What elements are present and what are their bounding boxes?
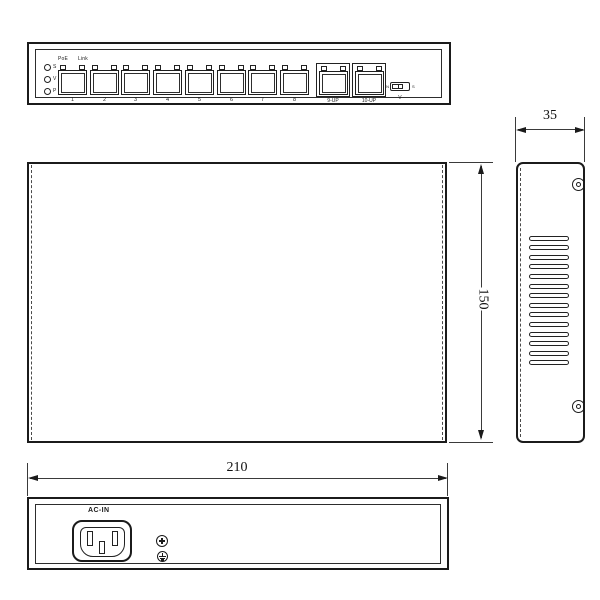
rj45-port[interactable]: 6 [217, 65, 246, 105]
port-opening [90, 70, 119, 95]
switch-right-mark: S [412, 84, 415, 89]
vent-slot [529, 341, 569, 346]
vent-slot [529, 255, 569, 260]
screw-hole-bottom [572, 400, 585, 413]
vent-slot [529, 360, 569, 365]
top-view [27, 162, 447, 443]
port-number: 5 [185, 97, 214, 103]
port-number: 4 [153, 97, 182, 103]
vent-slot [529, 293, 569, 298]
status-led-v [44, 76, 51, 83]
vent-slot [529, 274, 569, 279]
port-number: 1 [58, 97, 87, 103]
port-opening [217, 70, 246, 95]
vlan-mode-switch[interactable] [390, 82, 410, 91]
dim-150-ext-top [449, 162, 493, 163]
rj45-port[interactable]: 1 [58, 65, 87, 105]
rj45-port[interactable]: 5 [185, 65, 214, 105]
switch-technical-drawing: S V P PoE Link N S V 123456789-UP10-UP 1… [0, 0, 600, 600]
port-opening [355, 71, 384, 95]
rear-view: AC-IN [27, 497, 449, 570]
top-view-right-fold-line [442, 165, 443, 440]
vent-slot [529, 332, 569, 337]
poe-led-label: PoE [58, 56, 68, 62]
port-number: 3 [121, 97, 150, 103]
vent-slot [529, 312, 569, 317]
ac-in-label: AC-IN [88, 507, 109, 514]
side-view [516, 162, 585, 443]
status-led-p [44, 88, 51, 95]
uplink-port-frame[interactable] [316, 63, 350, 97]
port-opening [280, 70, 309, 95]
status-led-label-s: S [53, 64, 56, 71]
dim-35-ext-left [515, 117, 516, 162]
dim-150-arrow-down [478, 430, 484, 440]
rj45-port[interactable]: 7 [248, 65, 277, 105]
port-number: 8 [280, 97, 309, 103]
port-opening [319, 71, 348, 95]
dim-35-label: 35 [530, 108, 570, 124]
port-number: 2 [90, 97, 119, 103]
switch-label: V [390, 95, 410, 101]
dim-150-ext-bottom [449, 442, 493, 443]
ground-symbol [157, 551, 168, 562]
top-view-left-fold-line [31, 165, 32, 440]
dim-35-arrow-left [516, 127, 526, 133]
port-opening [121, 70, 150, 95]
rj45-port[interactable]: 8 [280, 65, 309, 105]
status-led-s [44, 64, 51, 71]
dim-150-arrow-up [478, 164, 484, 174]
ac-pin-center [99, 541, 105, 554]
dim-210-arrow-right [438, 475, 448, 481]
dim-35-arrow-right [575, 127, 585, 133]
uplink-port-number: 10-UP [352, 98, 386, 104]
vent-slot [529, 264, 569, 269]
port-number: 7 [248, 97, 277, 103]
ac-pin-left [87, 531, 93, 546]
port-number: 6 [217, 97, 246, 103]
dim-210-label: 210 [217, 460, 257, 476]
port-opening [58, 70, 87, 95]
status-led-label-v: V [53, 76, 56, 83]
side-view-fold-line [520, 168, 521, 437]
vent-slot [529, 303, 569, 308]
vent-slot [529, 284, 569, 289]
rj45-port[interactable]: 3 [121, 65, 150, 105]
ac-pin-right [112, 531, 118, 546]
dim-35-line [518, 129, 583, 130]
dim-210-arrow-left [28, 475, 38, 481]
dim-150-label: 150 [475, 288, 491, 311]
port-opening [248, 70, 277, 95]
front-view: S V P PoE Link N S V 123456789-UP10-UP [27, 42, 451, 105]
switch-knob [392, 84, 403, 89]
screw-symbol [156, 535, 168, 547]
dim-210-line [30, 478, 446, 479]
vent-slot [529, 351, 569, 356]
rj45-port[interactable]: 2 [90, 65, 119, 105]
dim-35-ext-right [584, 117, 585, 162]
vent-slot [529, 322, 569, 327]
vent-slot [529, 236, 569, 241]
uplink-port-number: 9-UP [316, 98, 350, 104]
screw-hole-top [572, 178, 585, 191]
ac-power-inlet[interactable] [72, 520, 132, 562]
vent-slot [529, 245, 569, 250]
uplink-port-frame[interactable] [352, 63, 386, 97]
rj45-port[interactable]: 4 [153, 65, 182, 105]
port-opening [153, 70, 182, 95]
link-led-label: Link [78, 56, 88, 62]
port-opening [185, 70, 214, 95]
status-led-label-p: P [53, 88, 56, 95]
